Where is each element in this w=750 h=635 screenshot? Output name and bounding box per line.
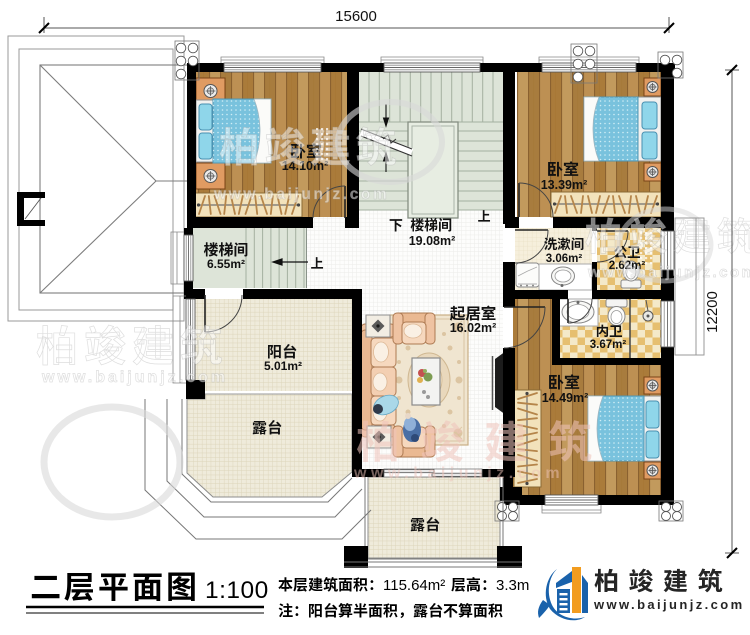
svg-text:注：阳台算半面积，露台不算面积: 注：阳台算半面积，露台不算面积 xyxy=(278,600,503,621)
svg-text:本层建筑面积：115.64m²: 本层建筑面积：115.64m² xyxy=(277,574,445,595)
svg-text:12200: 12200 xyxy=(704,291,721,333)
svg-text:楼梯间: 楼梯间 xyxy=(410,215,452,235)
svg-text:柏竣建筑: 柏竣建筑 xyxy=(594,562,732,598)
svg-text:内卫: 内卫 xyxy=(596,320,623,340)
svg-text:6.55m²: 6.55m² xyxy=(207,257,245,271)
svg-text:柏竣建筑: 柏竣建筑 xyxy=(36,313,228,374)
svg-text:13.39m²: 13.39m² xyxy=(541,178,588,192)
svg-text:1:100: 1:100 xyxy=(205,577,269,604)
svg-text:上: 上 xyxy=(310,253,323,272)
svg-text:19.08m²: 19.08m² xyxy=(409,234,456,248)
svg-text:www.baijunjz.com: www.baijunjz.com xyxy=(353,465,564,482)
svg-text:柏竣建筑: 柏竣建筑 xyxy=(585,206,750,261)
svg-text:洗漱间: 洗漱间 xyxy=(544,233,585,253)
svg-text:www.baijunjz.com: www.baijunjz.com xyxy=(593,597,745,612)
svg-text:卧室: 卧室 xyxy=(548,369,580,393)
svg-text:3.06m²: 3.06m² xyxy=(546,253,583,265)
svg-text:露台: 露台 xyxy=(410,514,440,535)
svg-text:露台: 露台 xyxy=(252,417,282,438)
svg-text:www.baijunjz.com: www.baijunjz.com xyxy=(213,186,389,203)
svg-text:14.49m²: 14.49m² xyxy=(542,391,589,405)
svg-text:3.67m²: 3.67m² xyxy=(590,339,627,351)
svg-text:5.01m²: 5.01m² xyxy=(264,359,302,373)
svg-text:柏竣建筑: 柏竣建筑 xyxy=(356,407,612,471)
svg-text:www.baijunjz.com: www.baijunjz.com xyxy=(41,369,228,386)
svg-text:卧室: 卧室 xyxy=(547,156,579,180)
svg-text:16.02m²: 16.02m² xyxy=(450,321,497,335)
svg-text:15600: 15600 xyxy=(335,8,377,25)
svg-text:层高：3.3m: 层高：3.3m xyxy=(451,574,529,595)
svg-text:柏竣建筑: 柏竣建筑 xyxy=(219,114,401,174)
svg-text:下: 下 xyxy=(389,215,403,235)
svg-text:上: 上 xyxy=(477,206,490,225)
svg-text:二层平面图: 二层平面图 xyxy=(30,562,200,607)
